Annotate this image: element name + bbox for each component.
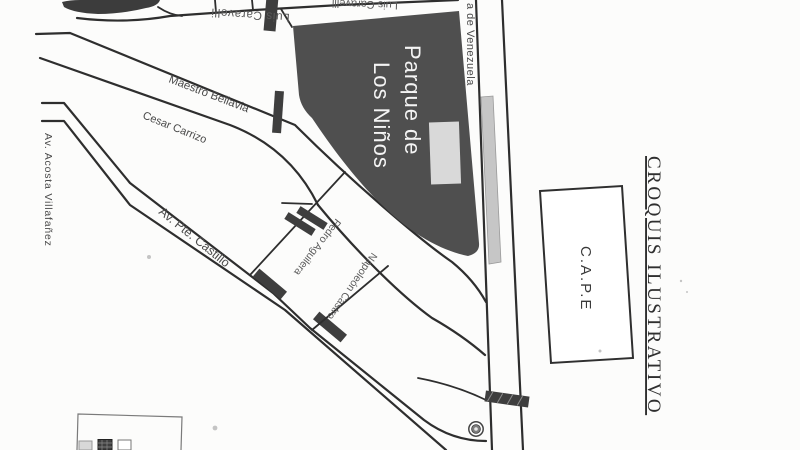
street-label-cesar-carrizo: Cesar Carrizo xyxy=(141,110,208,147)
scan-speck xyxy=(147,255,151,259)
roundabout-symbol xyxy=(469,422,483,436)
page-title: CROQUIS ILUSTRATIVO xyxy=(643,156,664,415)
city-block-shape xyxy=(62,0,160,14)
park-name-line1: Parque de xyxy=(400,45,425,156)
street-label-venezuela: a de Venezuela xyxy=(464,3,476,86)
cape-label: C.A.P.E xyxy=(577,246,594,311)
park-name-line2: Los Niños xyxy=(369,62,394,169)
street-label-acosta-villafanez: Av. Acosta Villafañez xyxy=(42,133,54,247)
street-label-pte-castillo: Av. Pte. Castillo xyxy=(156,204,233,270)
legend-swatch-3 xyxy=(118,440,131,450)
scan-speck xyxy=(680,280,682,282)
street-label-napoleon-castro: Napoleón Castro xyxy=(324,250,379,322)
street-junction-line xyxy=(282,203,312,204)
street-curve-line xyxy=(418,378,486,400)
scanned-map-page: Parque de Los Niños Luis Caravelli Luis … xyxy=(0,0,800,450)
scan-speck xyxy=(686,291,688,293)
legend-swatch-1 xyxy=(79,441,92,450)
street-label-maestro-bellavia: Maestro Bellavia xyxy=(167,74,251,116)
park-building-shape xyxy=(429,121,461,184)
street-marker xyxy=(253,269,287,300)
scan-speck xyxy=(213,426,218,431)
crosswalk-marker xyxy=(272,91,284,134)
avenue-venezuela-east-line xyxy=(502,0,523,450)
street-label-luis-caravelli-2: Luis Caravelli xyxy=(332,0,398,11)
scan-speck xyxy=(599,350,602,353)
legend-swatch-2 xyxy=(98,440,112,450)
croquis-map: Parque de Los Niños Luis Caravelli Luis … xyxy=(0,0,800,450)
